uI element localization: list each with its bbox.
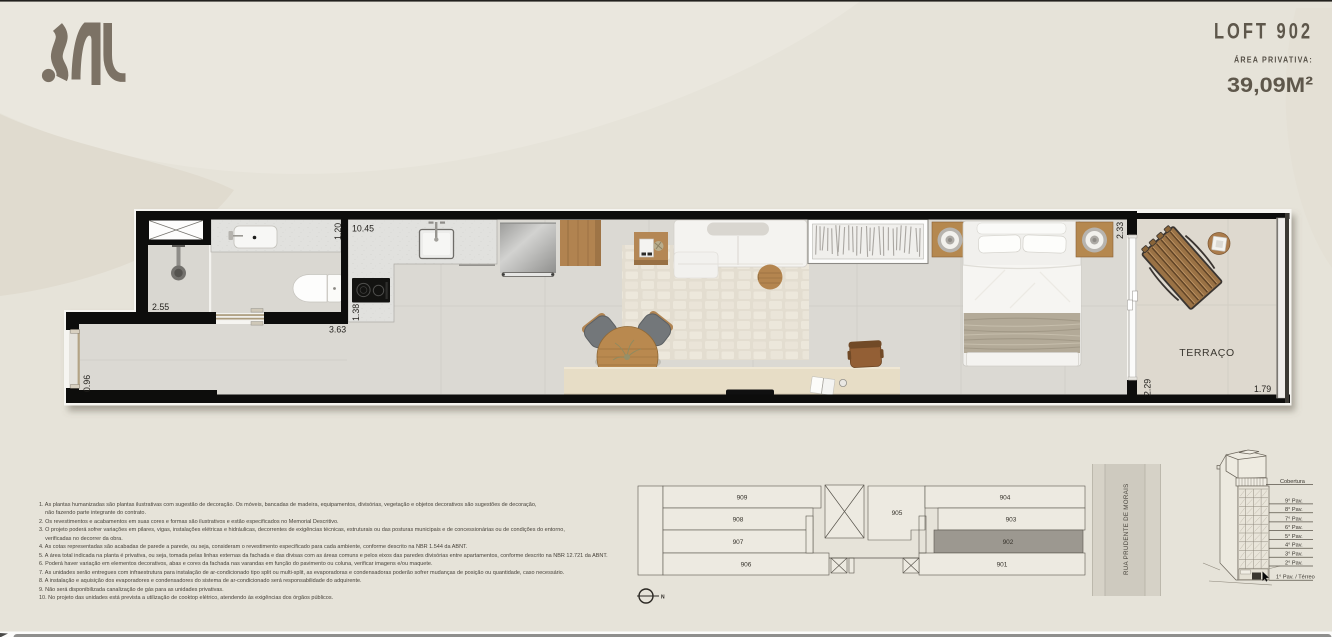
svg-text:909: 909 <box>737 495 748 502</box>
svg-text:904: 904 <box>1000 495 1011 502</box>
svg-text:901: 901 <box>997 562 1008 569</box>
svg-text:902: 902 <box>1003 539 1014 546</box>
svg-text:4° Pav.: 4° Pav. <box>1285 543 1303 549</box>
svg-text:907: 907 <box>733 539 744 546</box>
svg-text:3.63: 3.63 <box>329 325 346 335</box>
svg-text:ÁREA PRIVATIVA:: ÁREA PRIVATIVA: <box>1234 54 1313 65</box>
svg-text:1.79: 1.79 <box>1254 384 1271 394</box>
svg-text:2.29: 2.29 <box>1143 379 1153 396</box>
svg-text:2.33: 2.33 <box>1115 222 1125 239</box>
svg-text:903: 903 <box>1006 517 1017 524</box>
svg-text:1° Pav. / Térreo: 1° Pav. / Térreo <box>1276 575 1315 581</box>
svg-text:3° Pav.: 3° Pav. <box>1285 552 1303 558</box>
svg-text:TERRAÇO: TERRAÇO <box>1179 347 1235 359</box>
svg-text:LOFT 902: LOFT 902 <box>1214 19 1313 44</box>
svg-text:1.38: 1.38 <box>351 304 361 321</box>
svg-text:2.55: 2.55 <box>152 302 169 312</box>
svg-text:906: 906 <box>741 562 752 569</box>
svg-text:1.20: 1.20 <box>333 223 343 240</box>
svg-text:908: 908 <box>733 517 744 524</box>
svg-text:RUA PRUDENTE DE MORAIS: RUA PRUDENTE DE MORAIS <box>1123 483 1130 575</box>
svg-text:10.45: 10.45 <box>352 224 374 234</box>
svg-text:2° Pav.: 2° Pav. <box>1285 560 1303 566</box>
svg-text:905: 905 <box>892 510 903 517</box>
svg-text:39,09M²: 39,09M² <box>1227 73 1313 97</box>
svg-text:Cobertura: Cobertura <box>1280 479 1306 485</box>
svg-text:6° Pav.: 6° Pav. <box>1285 525 1303 531</box>
svg-text:8° Pav.: 8° Pav. <box>1285 507 1303 513</box>
svg-text:7° Pav.: 7° Pav. <box>1285 516 1303 522</box>
svg-text:5° Pav.: 5° Pav. <box>1285 534 1303 540</box>
svg-text:0.96: 0.96 <box>82 375 92 392</box>
svg-text:9° Pav.: 9° Pav. <box>1285 498 1303 504</box>
